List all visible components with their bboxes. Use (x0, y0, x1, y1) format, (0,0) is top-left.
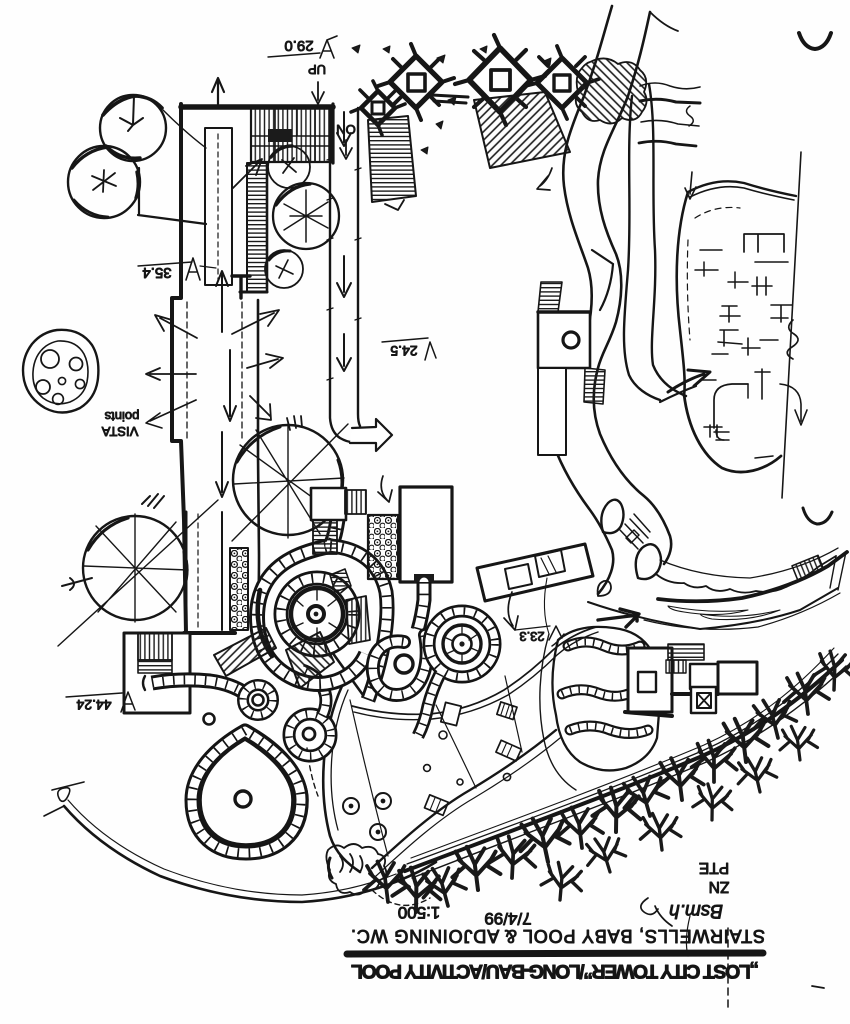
svg-text:1:500: 1:500 (398, 903, 441, 922)
svg-text:44.24: 44.24 (76, 697, 111, 713)
svg-text:Bsm.h: Bsm.h (669, 900, 723, 921)
svg-text:VISTA: VISTA (101, 424, 138, 439)
svg-text:STAIRWELLS, BABY POOL & ADJOIN: STAIRWELLS, BABY POOL & ADJOINING WC. (351, 926, 765, 946)
svg-text:ZN: ZN (709, 878, 730, 895)
svg-text:ON: ON (336, 122, 356, 137)
svg-text:UP: UP (308, 62, 326, 77)
svg-text:„LOST CITY TOWER”/LONG-BAU/ACT: „LOST CITY TOWER”/LONG-BAU/ACTIVITY POOL (351, 960, 759, 982)
svg-text:23.3: 23.3 (519, 629, 544, 644)
svg-text:35.4: 35.4 (142, 264, 171, 281)
svg-text:PTE: PTE (699, 859, 729, 876)
svg-text:7/4/99: 7/4/99 (484, 909, 531, 928)
svg-text:29.0: 29.0 (284, 37, 313, 54)
svg-text:points: points (104, 409, 139, 424)
svg-text:24.5: 24.5 (390, 343, 417, 359)
